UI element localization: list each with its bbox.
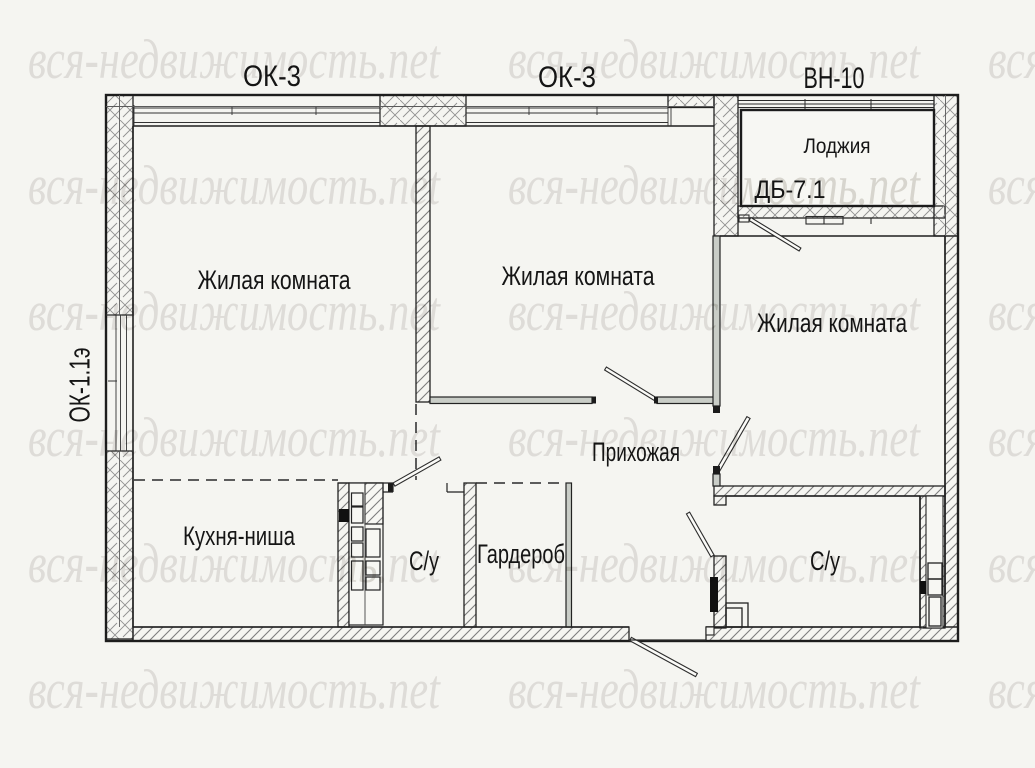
svg-text:вся-недвижимость.net: вся-недвижимость.net (28, 29, 441, 91)
svg-text:вся-недвижимость.net: вся-недвижимость.net (988, 29, 1035, 91)
svg-text:вся-недвижимость.net: вся-недвижимость.net (508, 29, 921, 91)
